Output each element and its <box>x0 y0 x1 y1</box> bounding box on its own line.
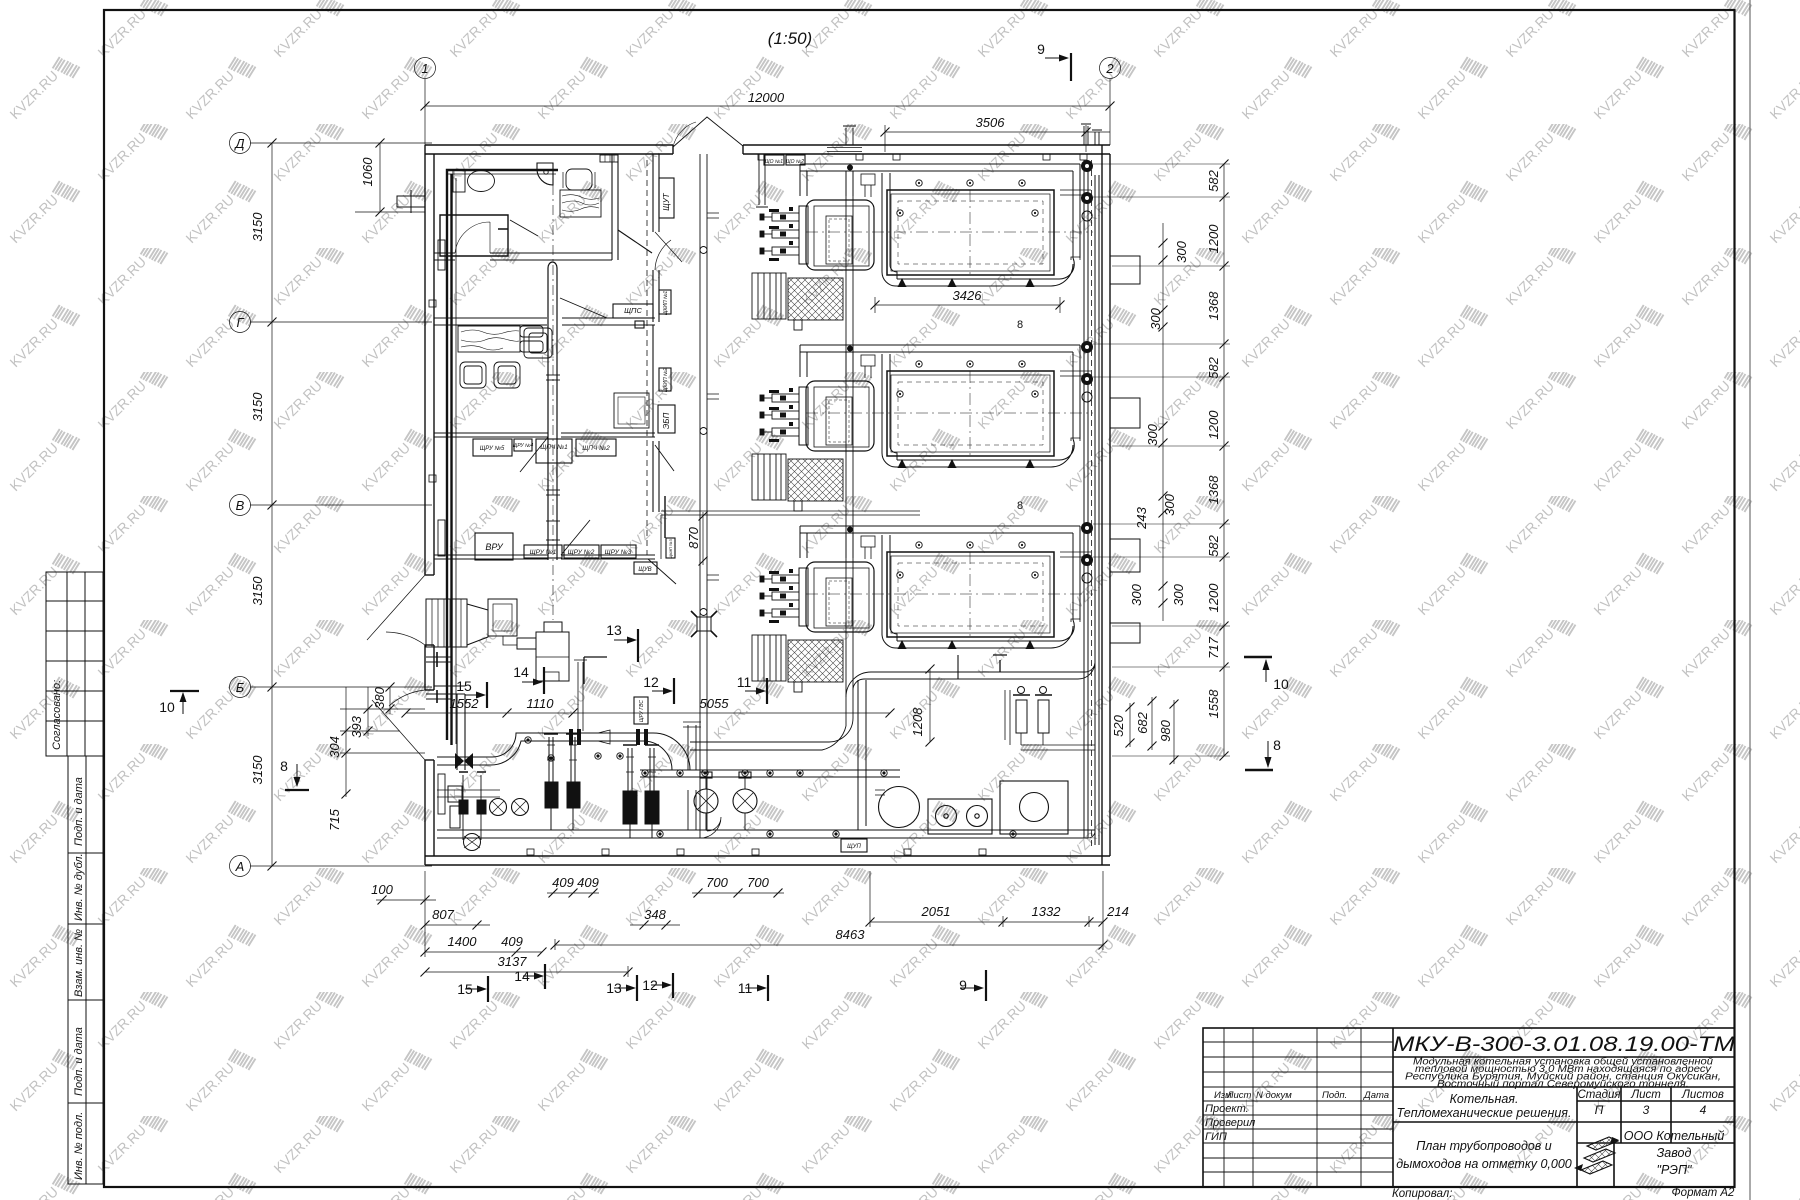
svg-text:ЩРУ №5: ЩРУ №5 <box>480 445 505 452</box>
svg-text:300: 300 <box>1148 307 1163 329</box>
svg-text:Проверил: Проверил <box>1205 1117 1255 1129</box>
svg-text:ЩРУ ГВС: ЩРУ ГВС <box>639 700 645 722</box>
svg-text:Тепломеханические решения.: Тепломеханические решения. <box>1397 1106 1572 1120</box>
svg-text:700: 700 <box>747 875 769 890</box>
svg-text:243: 243 <box>1134 506 1149 529</box>
svg-text:11: 11 <box>738 980 753 996</box>
svg-text:ЩПЧ №2: ЩПЧ №2 <box>582 445 610 452</box>
svg-text:1368: 1368 <box>1206 291 1221 321</box>
svg-text:3150: 3150 <box>250 576 265 606</box>
svg-text:682: 682 <box>1135 711 1150 733</box>
svg-text:12: 12 <box>643 674 659 690</box>
svg-text:3150: 3150 <box>250 212 265 242</box>
svg-text:Стадия: Стадия <box>1577 1089 1620 1101</box>
svg-text:393: 393 <box>349 715 364 737</box>
svg-text:409: 409 <box>501 934 523 949</box>
svg-text:1552: 1552 <box>450 696 480 711</box>
svg-text:348: 348 <box>644 907 666 922</box>
svg-text:8: 8 <box>1017 319 1023 331</box>
svg-text:300: 300 <box>1174 240 1189 262</box>
svg-text:11: 11 <box>737 674 752 690</box>
svg-text:В: В <box>236 498 245 513</box>
svg-text:ЩРУ №2: ЩРУ №2 <box>568 549 595 556</box>
svg-text:Лист: Лист <box>1630 1089 1661 1101</box>
svg-text:Проект.: Проект. <box>1205 1103 1249 1115</box>
svg-text:ВРУ: ВРУ <box>485 542 504 552</box>
svg-text:715: 715 <box>327 808 342 830</box>
svg-text:Д: Д <box>233 136 244 151</box>
svg-text:100: 100 <box>371 882 393 897</box>
svg-text:980: 980 <box>1158 719 1173 741</box>
svg-text:(1:50): (1:50) <box>768 29 812 48</box>
svg-text:А: А <box>235 859 245 874</box>
svg-text:ЩУП: ЩУП <box>847 844 861 850</box>
svg-text:14: 14 <box>513 664 529 680</box>
svg-text:2: 2 <box>1105 61 1114 76</box>
svg-text:МКУ-В-300-3.01.08.19.00-ТМ: МКУ-В-300-3.01.08.19.00-ТМ <box>1393 1033 1736 1056</box>
svg-text:3: 3 <box>1643 1103 1650 1117</box>
svg-text:Согласовано:: Согласовано: <box>51 680 63 750</box>
svg-text:520: 520 <box>1111 714 1126 736</box>
svg-text:ЩО №1: ЩО №1 <box>765 159 783 165</box>
svg-text:П: П <box>1595 1103 1604 1117</box>
svg-text:Листов: Листов <box>1681 1089 1724 1101</box>
svg-text:ЩПС: ЩПС <box>624 306 642 315</box>
svg-text:3150: 3150 <box>250 392 265 422</box>
svg-text:1060: 1060 <box>360 157 375 187</box>
svg-text:14: 14 <box>514 968 530 984</box>
svg-text:Копировал:: Копировал: <box>1392 1188 1452 1200</box>
svg-text:1558: 1558 <box>1206 689 1221 719</box>
svg-text:3150: 3150 <box>250 755 265 785</box>
svg-text:ЩРУ №4: ЩРУ №4 <box>513 443 534 449</box>
svg-text:214: 214 <box>1106 904 1129 919</box>
svg-text:9: 9 <box>1037 41 1045 57</box>
svg-text:Подп.: Подп. <box>1322 1090 1347 1101</box>
svg-text:ЩПЧ №1: ЩПЧ №1 <box>540 444 568 451</box>
svg-text:300: 300 <box>1171 583 1186 605</box>
svg-text:Инв. № подл.: Инв. № подл. <box>73 1112 85 1180</box>
svg-text:10: 10 <box>1273 676 1289 692</box>
svg-text:1368: 1368 <box>1206 475 1221 505</box>
svg-text:Г: Г <box>236 315 244 330</box>
svg-text:582: 582 <box>1206 169 1221 191</box>
svg-text:ЩРУ №3: ЩРУ №3 <box>605 549 632 556</box>
svg-text:12000: 12000 <box>748 90 785 105</box>
svg-text:3426: 3426 <box>953 288 983 303</box>
svg-text:N докум: N докум <box>1256 1090 1292 1101</box>
svg-text:Б: Б <box>236 680 245 695</box>
svg-text:ЩКИП №3: ЩКИП №3 <box>668 538 673 558</box>
svg-text:8: 8 <box>280 758 288 774</box>
svg-text:Подп. и дата: Подп. и дата <box>73 1027 85 1096</box>
svg-text:ГИП: ГИП <box>1205 1131 1227 1143</box>
svg-text:15: 15 <box>457 981 473 997</box>
svg-text:План трубопроводов и: План трубопроводов и <box>1416 1139 1552 1153</box>
svg-text:304: 304 <box>327 736 342 758</box>
svg-text:10: 10 <box>159 699 175 715</box>
svg-text:2051: 2051 <box>921 904 951 919</box>
svg-text:1208: 1208 <box>910 707 925 737</box>
svg-text:8463: 8463 <box>836 927 866 942</box>
svg-text:582: 582 <box>1206 534 1221 556</box>
svg-text:ЩРУ №1: ЩРУ №1 <box>530 549 557 556</box>
svg-text:582: 582 <box>1206 356 1221 378</box>
svg-text:1332: 1332 <box>1032 904 1062 919</box>
svg-text:8: 8 <box>1017 500 1023 512</box>
svg-text:12: 12 <box>642 977 658 993</box>
svg-text:"РЭП": "РЭП" <box>1657 1163 1693 1177</box>
svg-text:1400: 1400 <box>448 934 478 949</box>
svg-text:Взам. инв. №: Взам. инв. № <box>73 929 85 997</box>
svg-text:дымоходов на отметку 0,000: дымоходов на отметку 0,000 <box>1396 1157 1572 1171</box>
svg-text:ООО Котельный: ООО Котельный <box>1624 1129 1725 1143</box>
svg-text:700: 700 <box>706 875 728 890</box>
svg-text:300: 300 <box>1145 423 1160 445</box>
svg-text:13: 13 <box>606 622 622 638</box>
svg-text:1110: 1110 <box>527 696 555 711</box>
svg-text:Инв. № дубл.: Инв. № дубл. <box>73 853 85 921</box>
svg-text:807: 807 <box>432 907 454 922</box>
svg-text:Формат А2: Формат А2 <box>1672 1187 1736 1199</box>
svg-text:1: 1 <box>421 61 428 76</box>
svg-text:1200: 1200 <box>1206 583 1221 613</box>
svg-text:3137: 3137 <box>498 954 528 969</box>
svg-text:3506: 3506 <box>976 115 1006 130</box>
svg-text:870: 870 <box>686 526 701 548</box>
svg-text:Завод: Завод <box>1657 1146 1692 1160</box>
svg-text:Котельная.: Котельная. <box>1450 1092 1519 1106</box>
svg-text:8: 8 <box>1273 737 1281 753</box>
svg-text:1200: 1200 <box>1206 410 1221 440</box>
svg-text:1200: 1200 <box>1206 224 1221 254</box>
svg-text:300: 300 <box>1162 493 1177 515</box>
svg-text:ЩУТ: ЩУТ <box>662 192 671 210</box>
svg-text:Дата: Дата <box>1363 1090 1389 1101</box>
svg-text:ЩУВ: ЩУВ <box>638 567 651 573</box>
svg-text:300: 300 <box>1129 583 1144 605</box>
svg-text:4: 4 <box>1700 1103 1707 1117</box>
svg-text:ЩКИП №1: ЩКИП №1 <box>663 291 669 316</box>
svg-text:717: 717 <box>1206 636 1221 658</box>
svg-text:13: 13 <box>606 980 622 996</box>
svg-text:Лист: Лист <box>1226 1090 1252 1101</box>
svg-text:409: 409 <box>552 875 574 890</box>
svg-text:ЩКИП №2: ЩКИП №2 <box>663 368 669 393</box>
svg-text:9: 9 <box>959 977 967 993</box>
svg-text:380: 380 <box>372 686 387 708</box>
svg-text:409: 409 <box>577 875 599 890</box>
svg-text:5055: 5055 <box>700 696 730 711</box>
svg-text:Подп. и дата: Подп. и дата <box>73 777 85 846</box>
svg-text:ЭБП: ЭБП <box>662 413 671 430</box>
